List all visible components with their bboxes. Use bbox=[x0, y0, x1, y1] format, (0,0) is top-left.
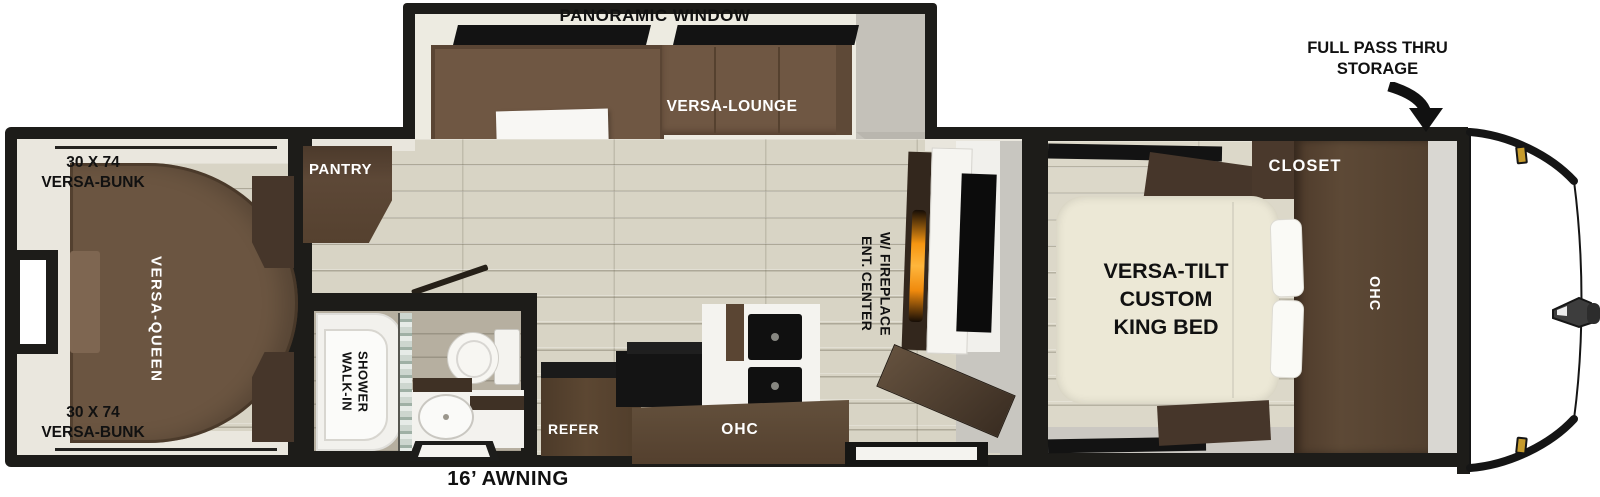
lounge-seam-1 bbox=[714, 47, 716, 133]
bunk-corner-cabinet-bottom bbox=[252, 352, 294, 442]
king-bed-label: VERSA-TILT CUSTOM KING BED bbox=[1076, 258, 1256, 342]
nose-rear-wall bbox=[1457, 128, 1470, 474]
bedroom-wardrobe bbox=[1294, 141, 1428, 453]
toilet-seat bbox=[456, 340, 492, 378]
entry-step bbox=[856, 447, 977, 460]
bed-foot-cabinet bbox=[1157, 400, 1271, 446]
range-cooktop bbox=[616, 351, 704, 407]
range-lid bbox=[627, 342, 704, 354]
panoramic-window-label: PANORAMIC WINDOW bbox=[525, 5, 785, 27]
shower-curtain bbox=[398, 313, 412, 451]
pass-thru-arrow-icon bbox=[1383, 82, 1445, 136]
walk-in-shower-label: WALK-IN SHOWER bbox=[338, 326, 371, 438]
bunk-bottom-label: 30 X 74 VERSA-BUNK bbox=[28, 403, 158, 443]
tv-screen bbox=[956, 173, 996, 332]
pantry-label: PANTRY bbox=[309, 160, 389, 180]
floorplan: 30 X 74 VERSA-BUNK 30 X 74 VERSA-BUNK VE… bbox=[0, 0, 1600, 497]
nose-body bbox=[1470, 132, 1582, 468]
lounge-armrest bbox=[836, 45, 852, 135]
sink-drain-2 bbox=[771, 382, 779, 390]
counter-edge-cabinet bbox=[726, 304, 744, 361]
rear-window bbox=[12, 250, 58, 354]
gold-marker-top bbox=[1516, 147, 1527, 164]
refer-label: REFER bbox=[548, 420, 636, 438]
bath-mat bbox=[408, 441, 500, 461]
bedroom-ohc-label: OHC bbox=[1364, 276, 1383, 346]
vanity-sink bbox=[418, 394, 474, 440]
versa-lounge-label: VERSA-LOUNGE bbox=[664, 97, 800, 117]
kitchen-ohc-label: OHC bbox=[700, 420, 780, 440]
pass-thru-storage-area bbox=[1428, 141, 1458, 453]
pillow-bottom bbox=[1270, 299, 1305, 378]
lounge-sofa-right bbox=[662, 45, 852, 135]
sink-basin-1 bbox=[748, 314, 802, 360]
panoramic-window-right bbox=[673, 25, 859, 45]
sink-drain-1 bbox=[771, 333, 779, 341]
rear-window-pane bbox=[20, 260, 46, 344]
fireplace-flame bbox=[909, 210, 927, 322]
closet-label: CLOSET bbox=[1262, 156, 1348, 177]
lounge-seam-2 bbox=[778, 47, 780, 133]
queen-headboard bbox=[70, 251, 100, 353]
versa-queen-label: VERSA-QUEEN bbox=[146, 256, 166, 396]
slideout-side-wall bbox=[856, 14, 925, 145]
ent-center-label: ENT. CENTER W/ FIREPLACE bbox=[858, 196, 894, 372]
bunk-frame-bottom bbox=[55, 448, 277, 451]
sink-basin-2 bbox=[748, 367, 802, 406]
gold-marker-bottom bbox=[1516, 438, 1527, 454]
bunk-top-label: 30 X 74 VERSA-BUNK bbox=[28, 153, 158, 193]
vanity-ledge-left bbox=[413, 378, 472, 392]
pillow-top bbox=[1270, 218, 1305, 297]
vanity-ledge-right bbox=[470, 396, 524, 410]
bunk-frame-top bbox=[55, 146, 277, 149]
awning-label: 16’ AWNING bbox=[408, 466, 608, 493]
bath-mat-inner bbox=[418, 445, 490, 457]
vanity-drain bbox=[443, 414, 449, 420]
bunk-corner-cabinet-top bbox=[252, 176, 294, 268]
toilet-bowl bbox=[447, 332, 499, 384]
panoramic-window-left bbox=[453, 25, 651, 45]
pass-thru-label: FULL PASS THRU STORAGE bbox=[1290, 38, 1465, 81]
trailer-nose bbox=[1455, 118, 1600, 484]
